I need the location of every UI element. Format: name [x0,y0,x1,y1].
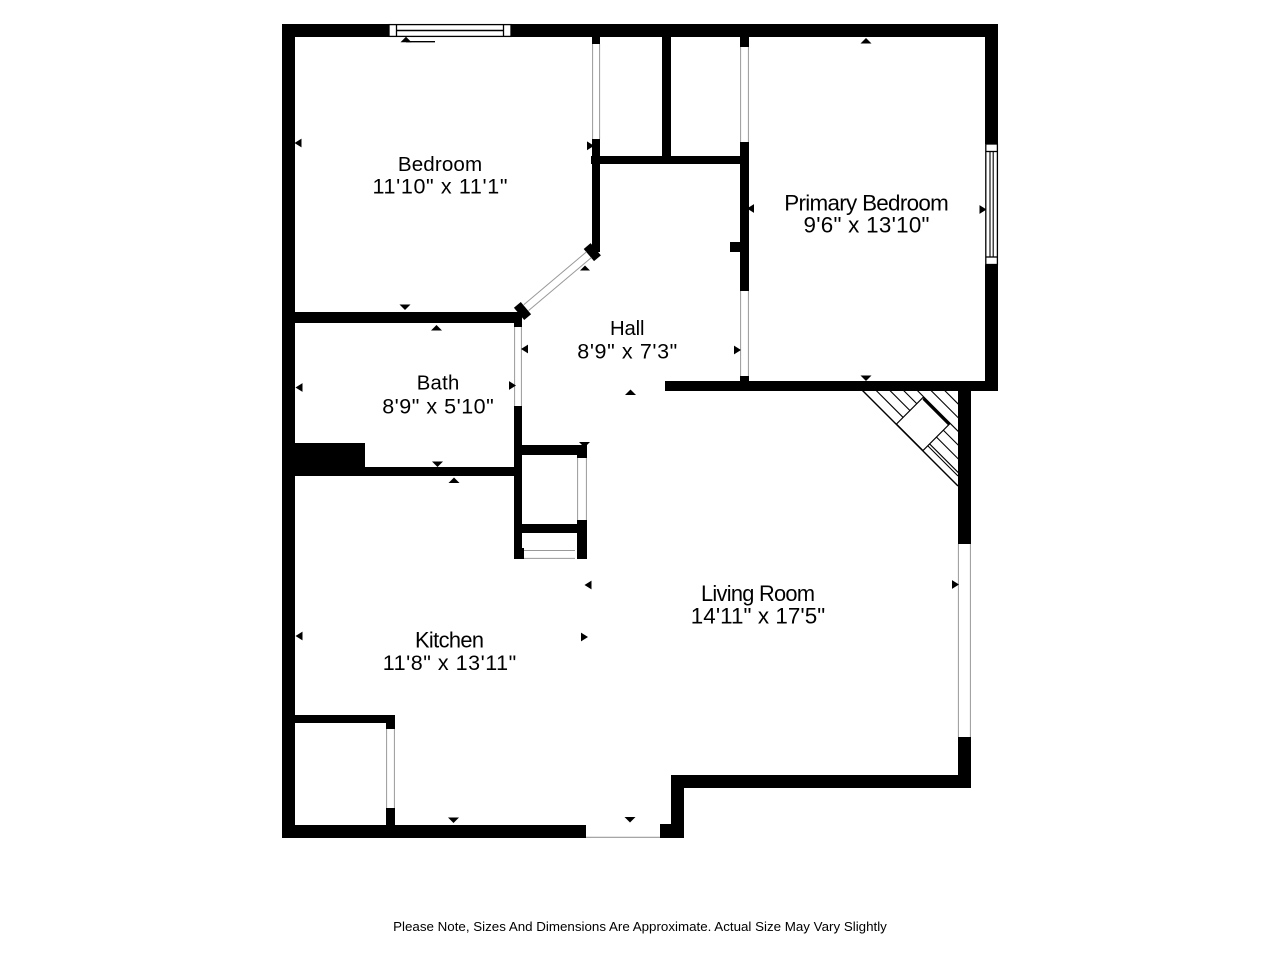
svg-text:Please Note, Sizes And Dimensi: Please Note, Sizes And Dimensions Are Ap… [393,919,887,934]
svg-text:9'6" x 13'10": 9'6" x 13'10" [804,213,930,238]
svg-text:11'10" x 11'1": 11'10" x 11'1" [373,175,508,199]
svg-text:8'9" x 7'3": 8'9" x 7'3" [577,340,677,364]
svg-text:Bath: Bath [417,373,460,395]
svg-text:Hall: Hall [610,318,645,340]
svg-text:Living Room: Living Room [701,581,815,606]
svg-text:8'9" x 5'10": 8'9" x 5'10" [382,395,494,419]
svg-text:Bedroom: Bedroom [398,153,482,176]
svg-text:14'11" x 17'5": 14'11" x 17'5" [691,604,825,629]
svg-text:11'8" x 13'11": 11'8" x 13'11" [383,651,517,675]
svg-text:Kitchen: Kitchen [415,628,484,653]
